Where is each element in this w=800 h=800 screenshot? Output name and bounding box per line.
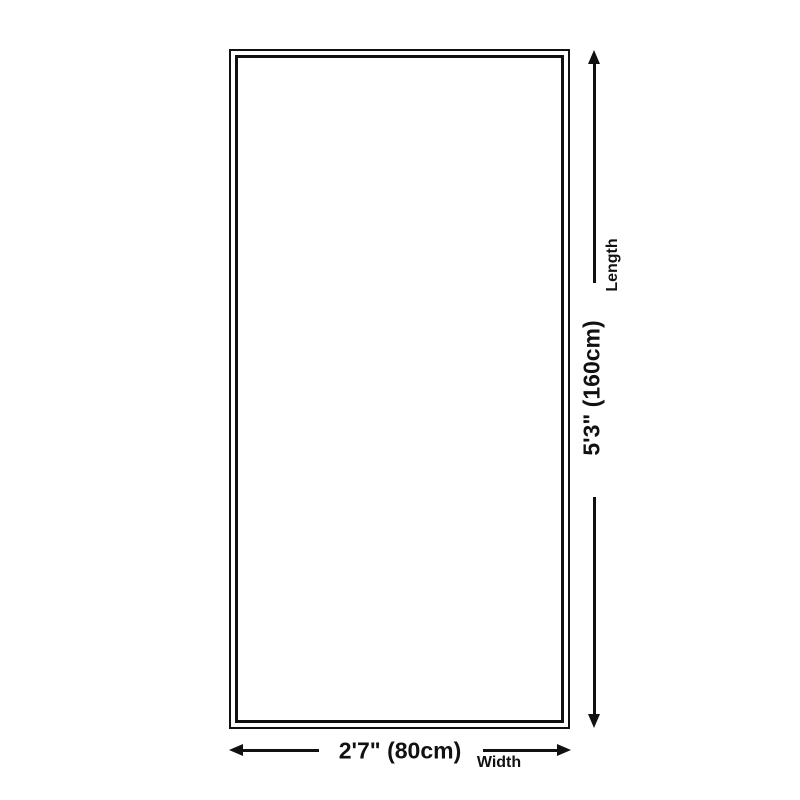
width-axis-label: Width	[477, 755, 521, 771]
length-dimension-line-bottom	[593, 497, 596, 716]
length-axis-label: Length	[605, 238, 621, 291]
arrow-right-icon	[557, 744, 571, 756]
arrow-down-icon	[588, 714, 600, 728]
product-outline	[229, 49, 570, 729]
length-dimension-value: 5'3" (160cm)	[581, 320, 604, 455]
width-dimension-line-left	[242, 749, 319, 752]
width-dimension-value: 2'7" (80cm)	[339, 740, 462, 763]
product-outline-inner-border	[235, 55, 564, 723]
product-dimension-diagram: Length 5'3" (160cm) 2'7" (80cm) Width	[0, 0, 800, 800]
arrow-left-icon	[229, 744, 243, 756]
length-dimension-line-top	[593, 62, 596, 283]
width-dimension-line-right	[483, 749, 558, 752]
